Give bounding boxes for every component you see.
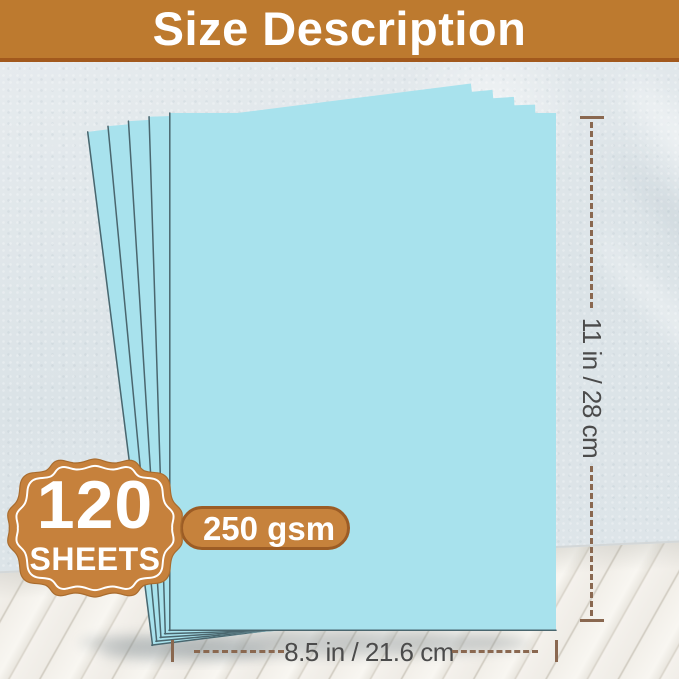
height-dimension-tick-top	[580, 116, 604, 119]
page-title: Size Description	[153, 5, 527, 54]
width-dimension-line-left	[194, 650, 284, 653]
width-dimension-tick-left	[171, 640, 174, 662]
height-dimension-tick-bottom	[580, 619, 604, 622]
height-dimension-line-upper	[590, 122, 593, 308]
badge-count: 120	[4, 471, 186, 539]
weight-pill: 250 gsm	[180, 506, 350, 550]
weight-pill-label: 250 gsm	[195, 512, 335, 545]
badge-unit: SHEETS	[4, 543, 186, 575]
width-dimension-line-right	[452, 650, 538, 653]
width-dimension-label: 8.5 in / 21.6 cm	[284, 639, 454, 665]
product-size-infographic: 11 in / 28 cm 8.5 in / 21.6 cm 250 gsm 1…	[0, 0, 679, 679]
title-banner: Size Description	[0, 0, 679, 62]
paper-sheet-front	[169, 113, 556, 631]
height-dimension-line-lower	[590, 466, 593, 616]
sheet-count-badge: 120 SHEETS	[4, 455, 186, 601]
height-dimension-label: 11 in / 28 cm	[579, 318, 605, 458]
width-dimension-tick-right	[555, 640, 558, 662]
